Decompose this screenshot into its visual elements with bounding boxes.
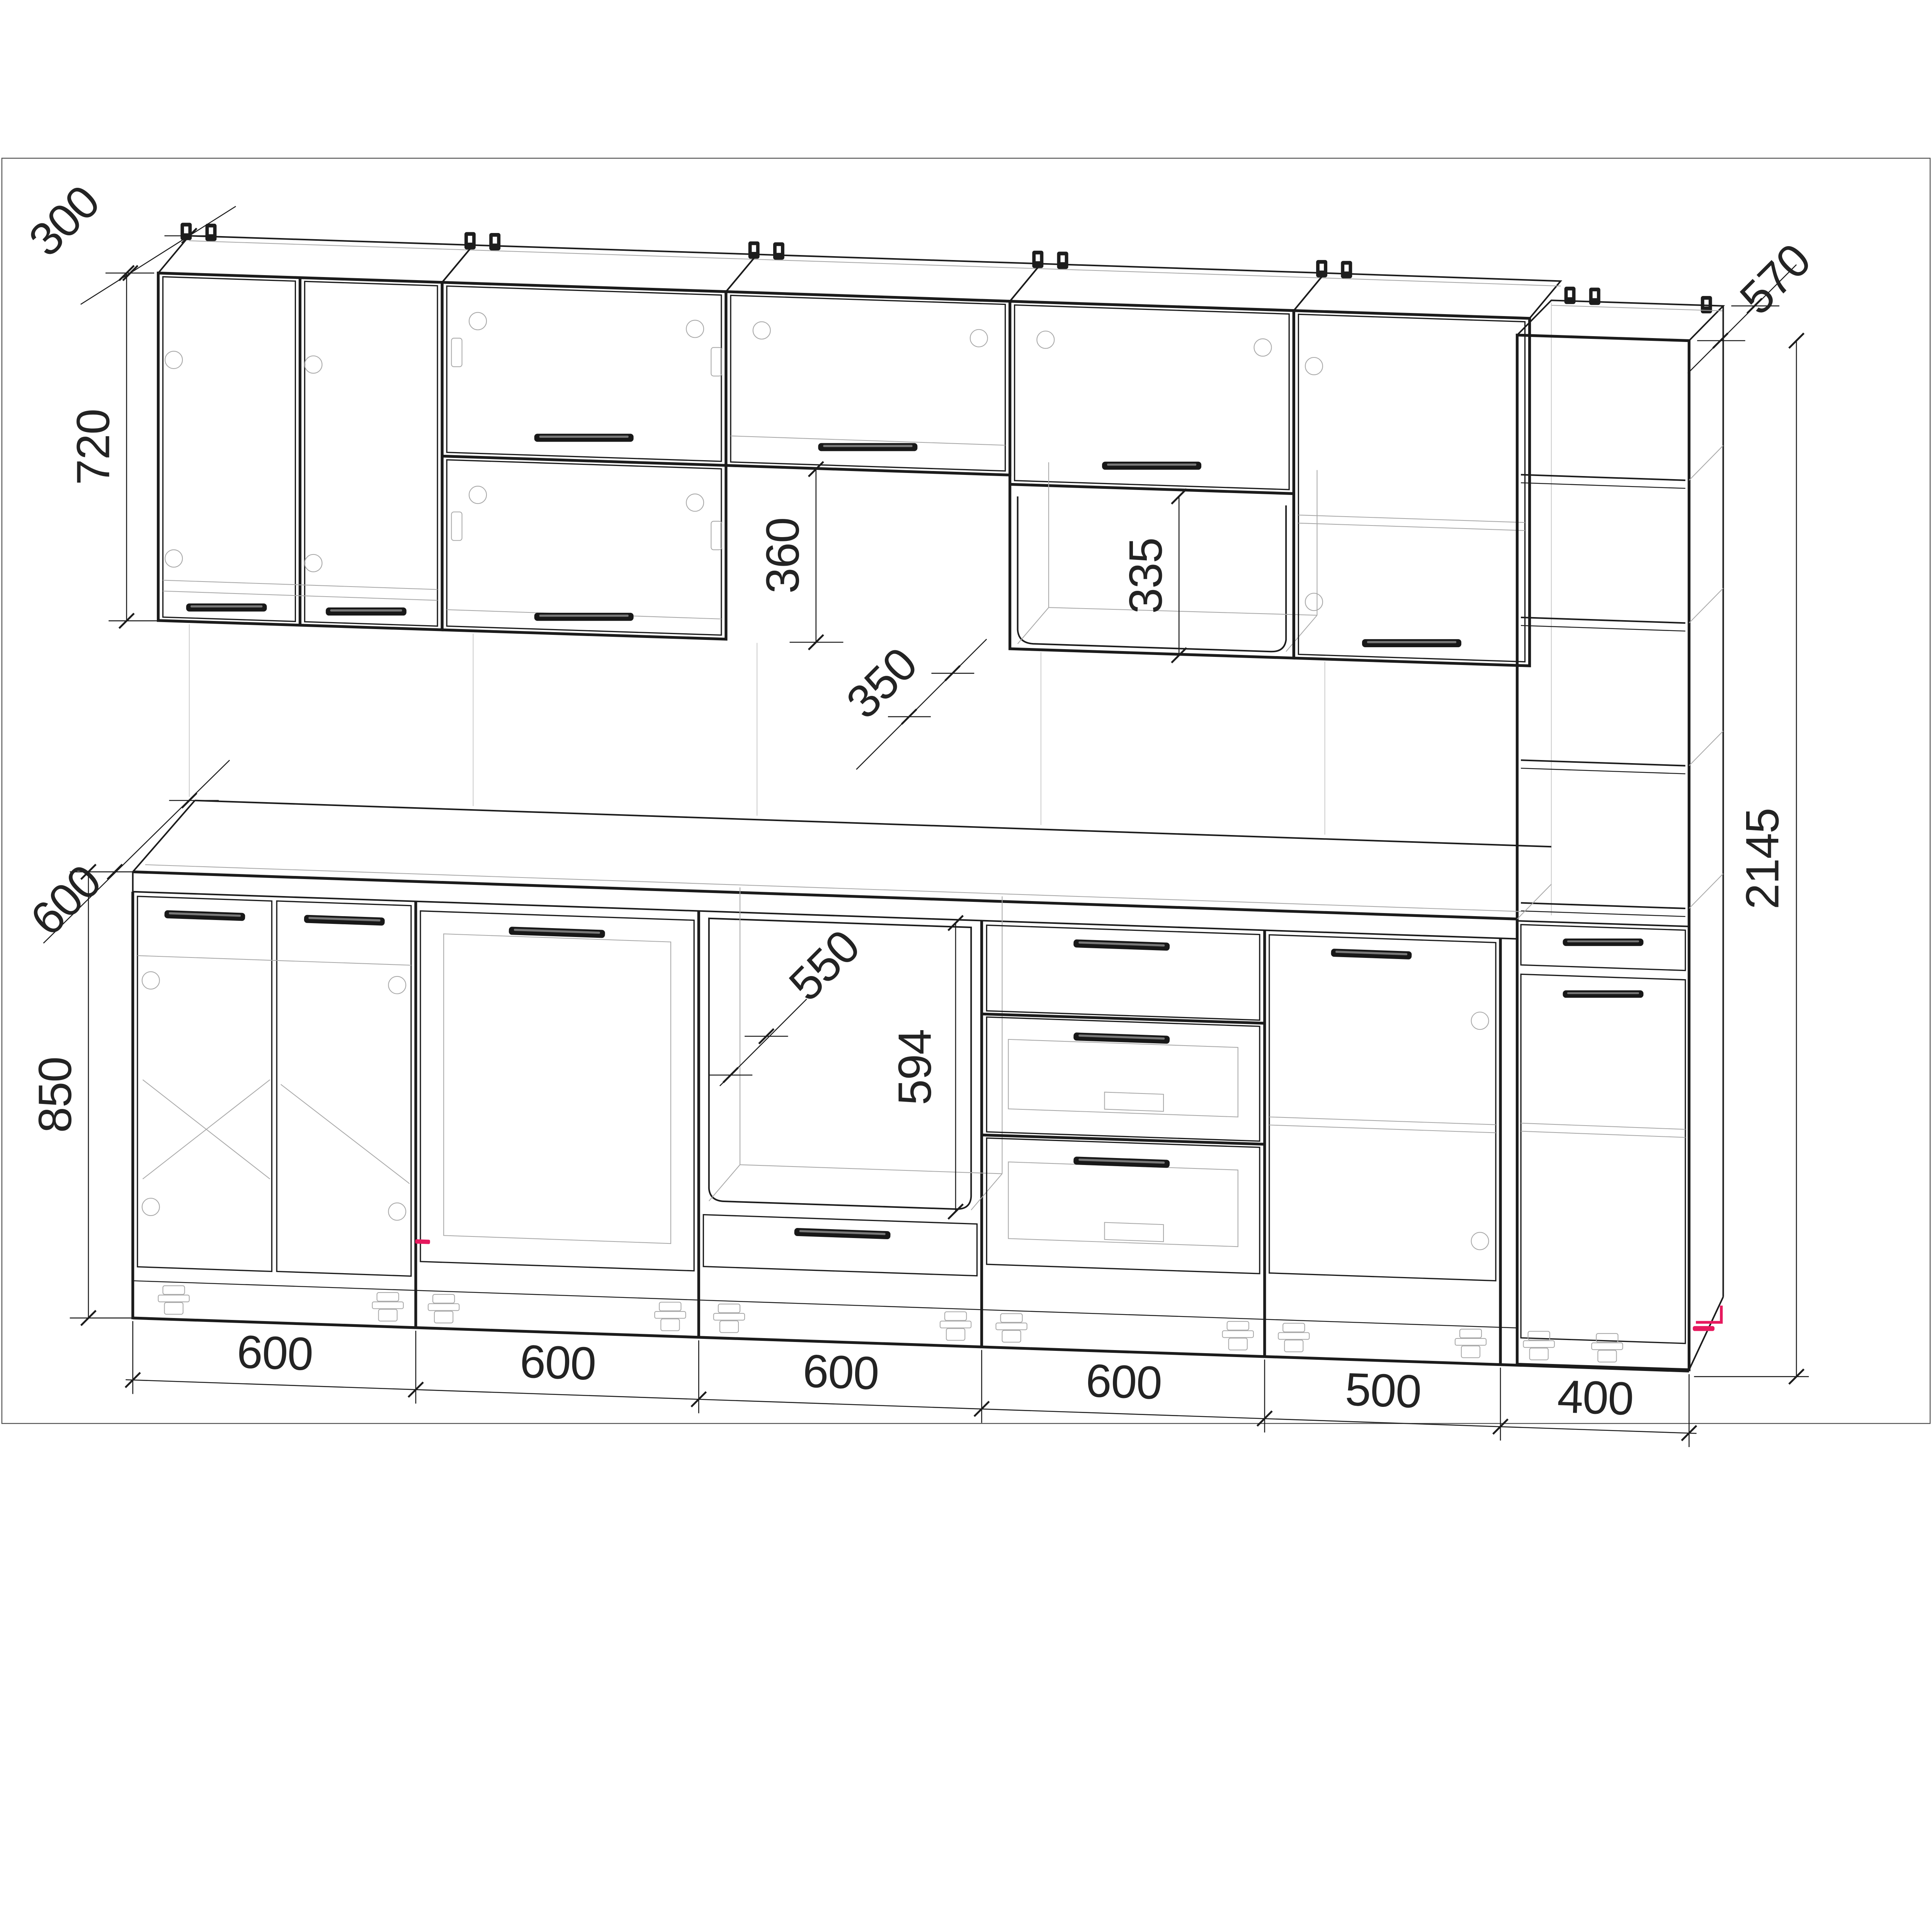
hinge-icon xyxy=(165,351,322,572)
dim-label: 570 xyxy=(1730,234,1820,324)
dim-oven-niche-depth: 550 xyxy=(709,920,869,1086)
base-cabinet-row xyxy=(133,887,1689,1371)
wall-cabinet-1 xyxy=(158,236,473,630)
hinge-icon xyxy=(1305,357,1323,611)
dim-hood-gap-height: 360 xyxy=(757,462,844,650)
dim-label: 2145 xyxy=(1736,808,1789,910)
tall-cabinet xyxy=(1517,300,1723,1370)
wall-cabinet-row xyxy=(158,223,1712,835)
wall-back-lines xyxy=(189,624,1325,835)
kitchen-technical-drawing: 300 720 360 350 335 xyxy=(0,0,1932,1581)
dim-label: 850 xyxy=(29,1057,81,1133)
door-handle xyxy=(1102,462,1201,470)
accent-mark xyxy=(415,1239,430,1244)
dim-label: 550 xyxy=(779,920,869,1010)
wall-cabinet-2 xyxy=(442,245,757,639)
dim-label: 300 xyxy=(19,175,109,266)
door-handle xyxy=(164,910,385,925)
dim-label: 600 xyxy=(1085,1354,1163,1409)
door-handle xyxy=(794,1228,890,1240)
dimensions: 300 720 360 350 335 xyxy=(19,175,1820,1447)
dim-width-chain: 600 600 600 600 500 400 xyxy=(125,1321,1696,1447)
dim-hood-gap-depth: 350 xyxy=(836,638,986,770)
dim-label: 335 xyxy=(1119,538,1172,614)
dim-label: 400 xyxy=(1556,1370,1634,1425)
dim-label: 360 xyxy=(757,518,809,594)
hinge-icon xyxy=(1471,1012,1489,1250)
dim-oven-niche-height: 594 xyxy=(889,916,963,1219)
dim-tall-height: 2145 xyxy=(1694,333,1809,1384)
plinth xyxy=(133,1281,1689,1371)
dim-wall-depth: 300 xyxy=(19,175,236,304)
drawer-handle xyxy=(1073,939,1170,1168)
drawing-page: 300 720 360 350 335 xyxy=(0,0,1932,1581)
dim-wall-height: 720 xyxy=(67,265,162,628)
dim-label: 600 xyxy=(519,1335,597,1390)
dim-label: 720 xyxy=(67,409,119,485)
base-cabinet-2 xyxy=(415,911,694,1270)
door-handle xyxy=(186,604,406,616)
dim-label: 600 xyxy=(802,1345,879,1400)
hinge-icon xyxy=(1037,331,1271,356)
base-cabinet-1 xyxy=(138,896,411,1276)
door-handle xyxy=(1362,639,1461,647)
base-cabinet-5 xyxy=(1269,935,1496,1281)
dim-label: 594 xyxy=(889,1029,941,1105)
door-handle xyxy=(818,443,917,451)
tall-base-section xyxy=(1517,921,1721,1344)
dim-label: 600 xyxy=(236,1325,314,1380)
base-cabinet-4 xyxy=(982,925,1265,1274)
dim-label: 500 xyxy=(1344,1363,1422,1418)
dim-label: 600 xyxy=(20,855,111,946)
door-handle xyxy=(1331,949,1412,959)
dim-wall-niche-height: 335 xyxy=(1119,489,1186,663)
dim-label: 350 xyxy=(836,638,927,728)
sheet-border xyxy=(2,158,1930,1423)
hinge-icon xyxy=(142,972,406,1220)
wall-cabinet-3 xyxy=(726,254,1041,475)
hinge-icon xyxy=(469,313,704,512)
hinge-icon xyxy=(753,322,988,347)
